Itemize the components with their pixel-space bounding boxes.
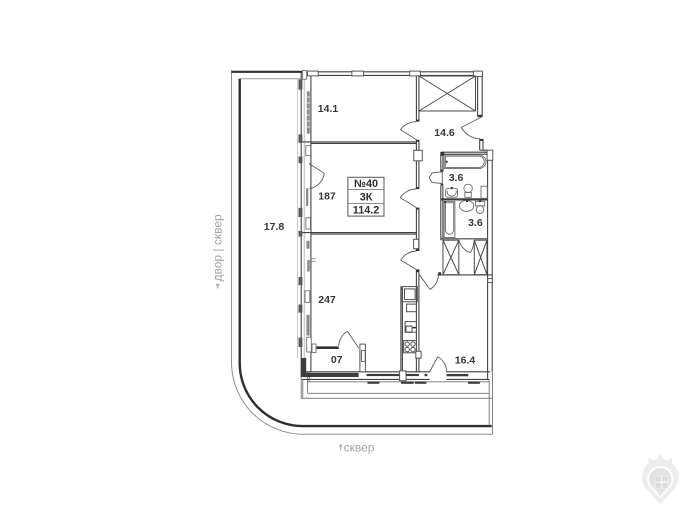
svg-text:№40: №40 bbox=[354, 178, 378, 190]
svg-text:3К: 3К bbox=[360, 192, 373, 204]
svg-text:14.6: 14.6 bbox=[434, 127, 455, 139]
svg-text:сквер: сквер bbox=[344, 441, 375, 455]
svg-text:3.6: 3.6 bbox=[449, 172, 464, 184]
svg-text:двор | сквер: двор | сквер bbox=[211, 214, 225, 282]
svg-text:247: 247 bbox=[318, 294, 336, 306]
svg-text:14.1: 14.1 bbox=[318, 103, 339, 115]
svg-text:07: 07 bbox=[331, 354, 343, 366]
svg-text:3.6: 3.6 bbox=[468, 217, 483, 229]
svg-text:16.4: 16.4 bbox=[455, 355, 476, 367]
svg-text:187: 187 bbox=[318, 191, 336, 203]
svg-text:114.2: 114.2 bbox=[353, 205, 379, 217]
svg-text:17.8: 17.8 bbox=[264, 221, 285, 233]
